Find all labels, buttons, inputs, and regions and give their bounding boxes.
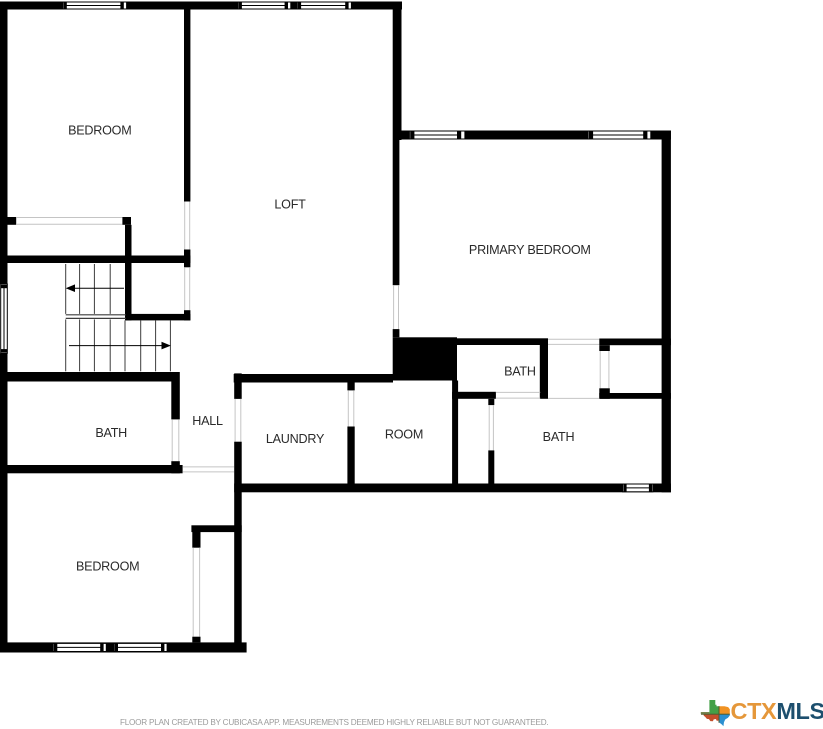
svg-text:LOFT: LOFT [274,198,306,212]
svg-text:CTXMLS: CTXMLS [731,698,823,724]
svg-text:ROOM: ROOM [385,428,423,442]
svg-text:PRIMARY BEDROOM: PRIMARY BEDROOM [469,243,591,257]
svg-text:FLOOR PLAN CREATED BY CUBICASA: FLOOR PLAN CREATED BY CUBICASA APP. MEAS… [120,718,548,727]
svg-text:BATH: BATH [95,426,127,440]
svg-text:BATH: BATH [543,430,575,444]
svg-text:BATH: BATH [504,364,536,378]
svg-text:HALL: HALL [192,414,223,428]
svg-text:LAUNDRY: LAUNDRY [266,432,325,446]
svg-text:BEDROOM: BEDROOM [68,124,131,138]
svg-text:BEDROOM: BEDROOM [76,559,139,573]
